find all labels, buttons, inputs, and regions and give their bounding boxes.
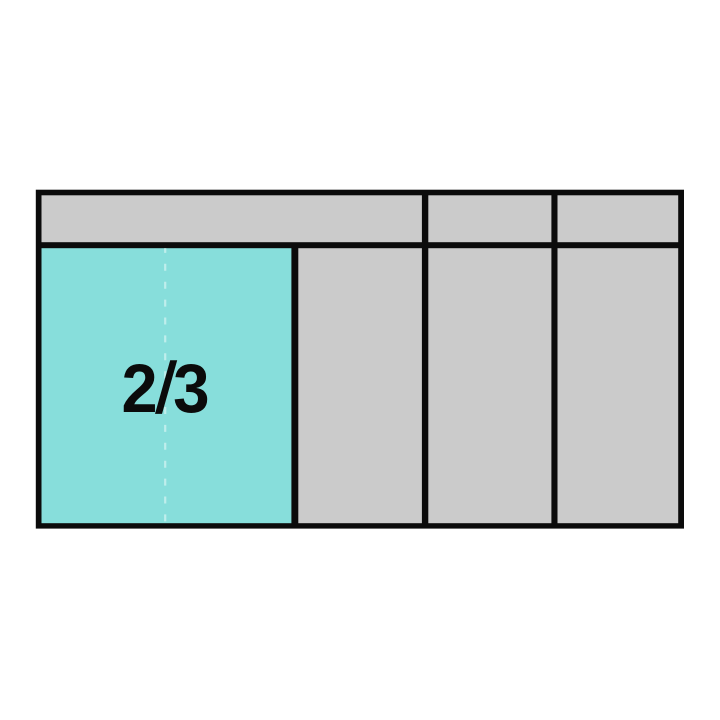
svg-text:3: 3: [173, 350, 209, 427]
svg-text:2: 2: [121, 350, 157, 427]
